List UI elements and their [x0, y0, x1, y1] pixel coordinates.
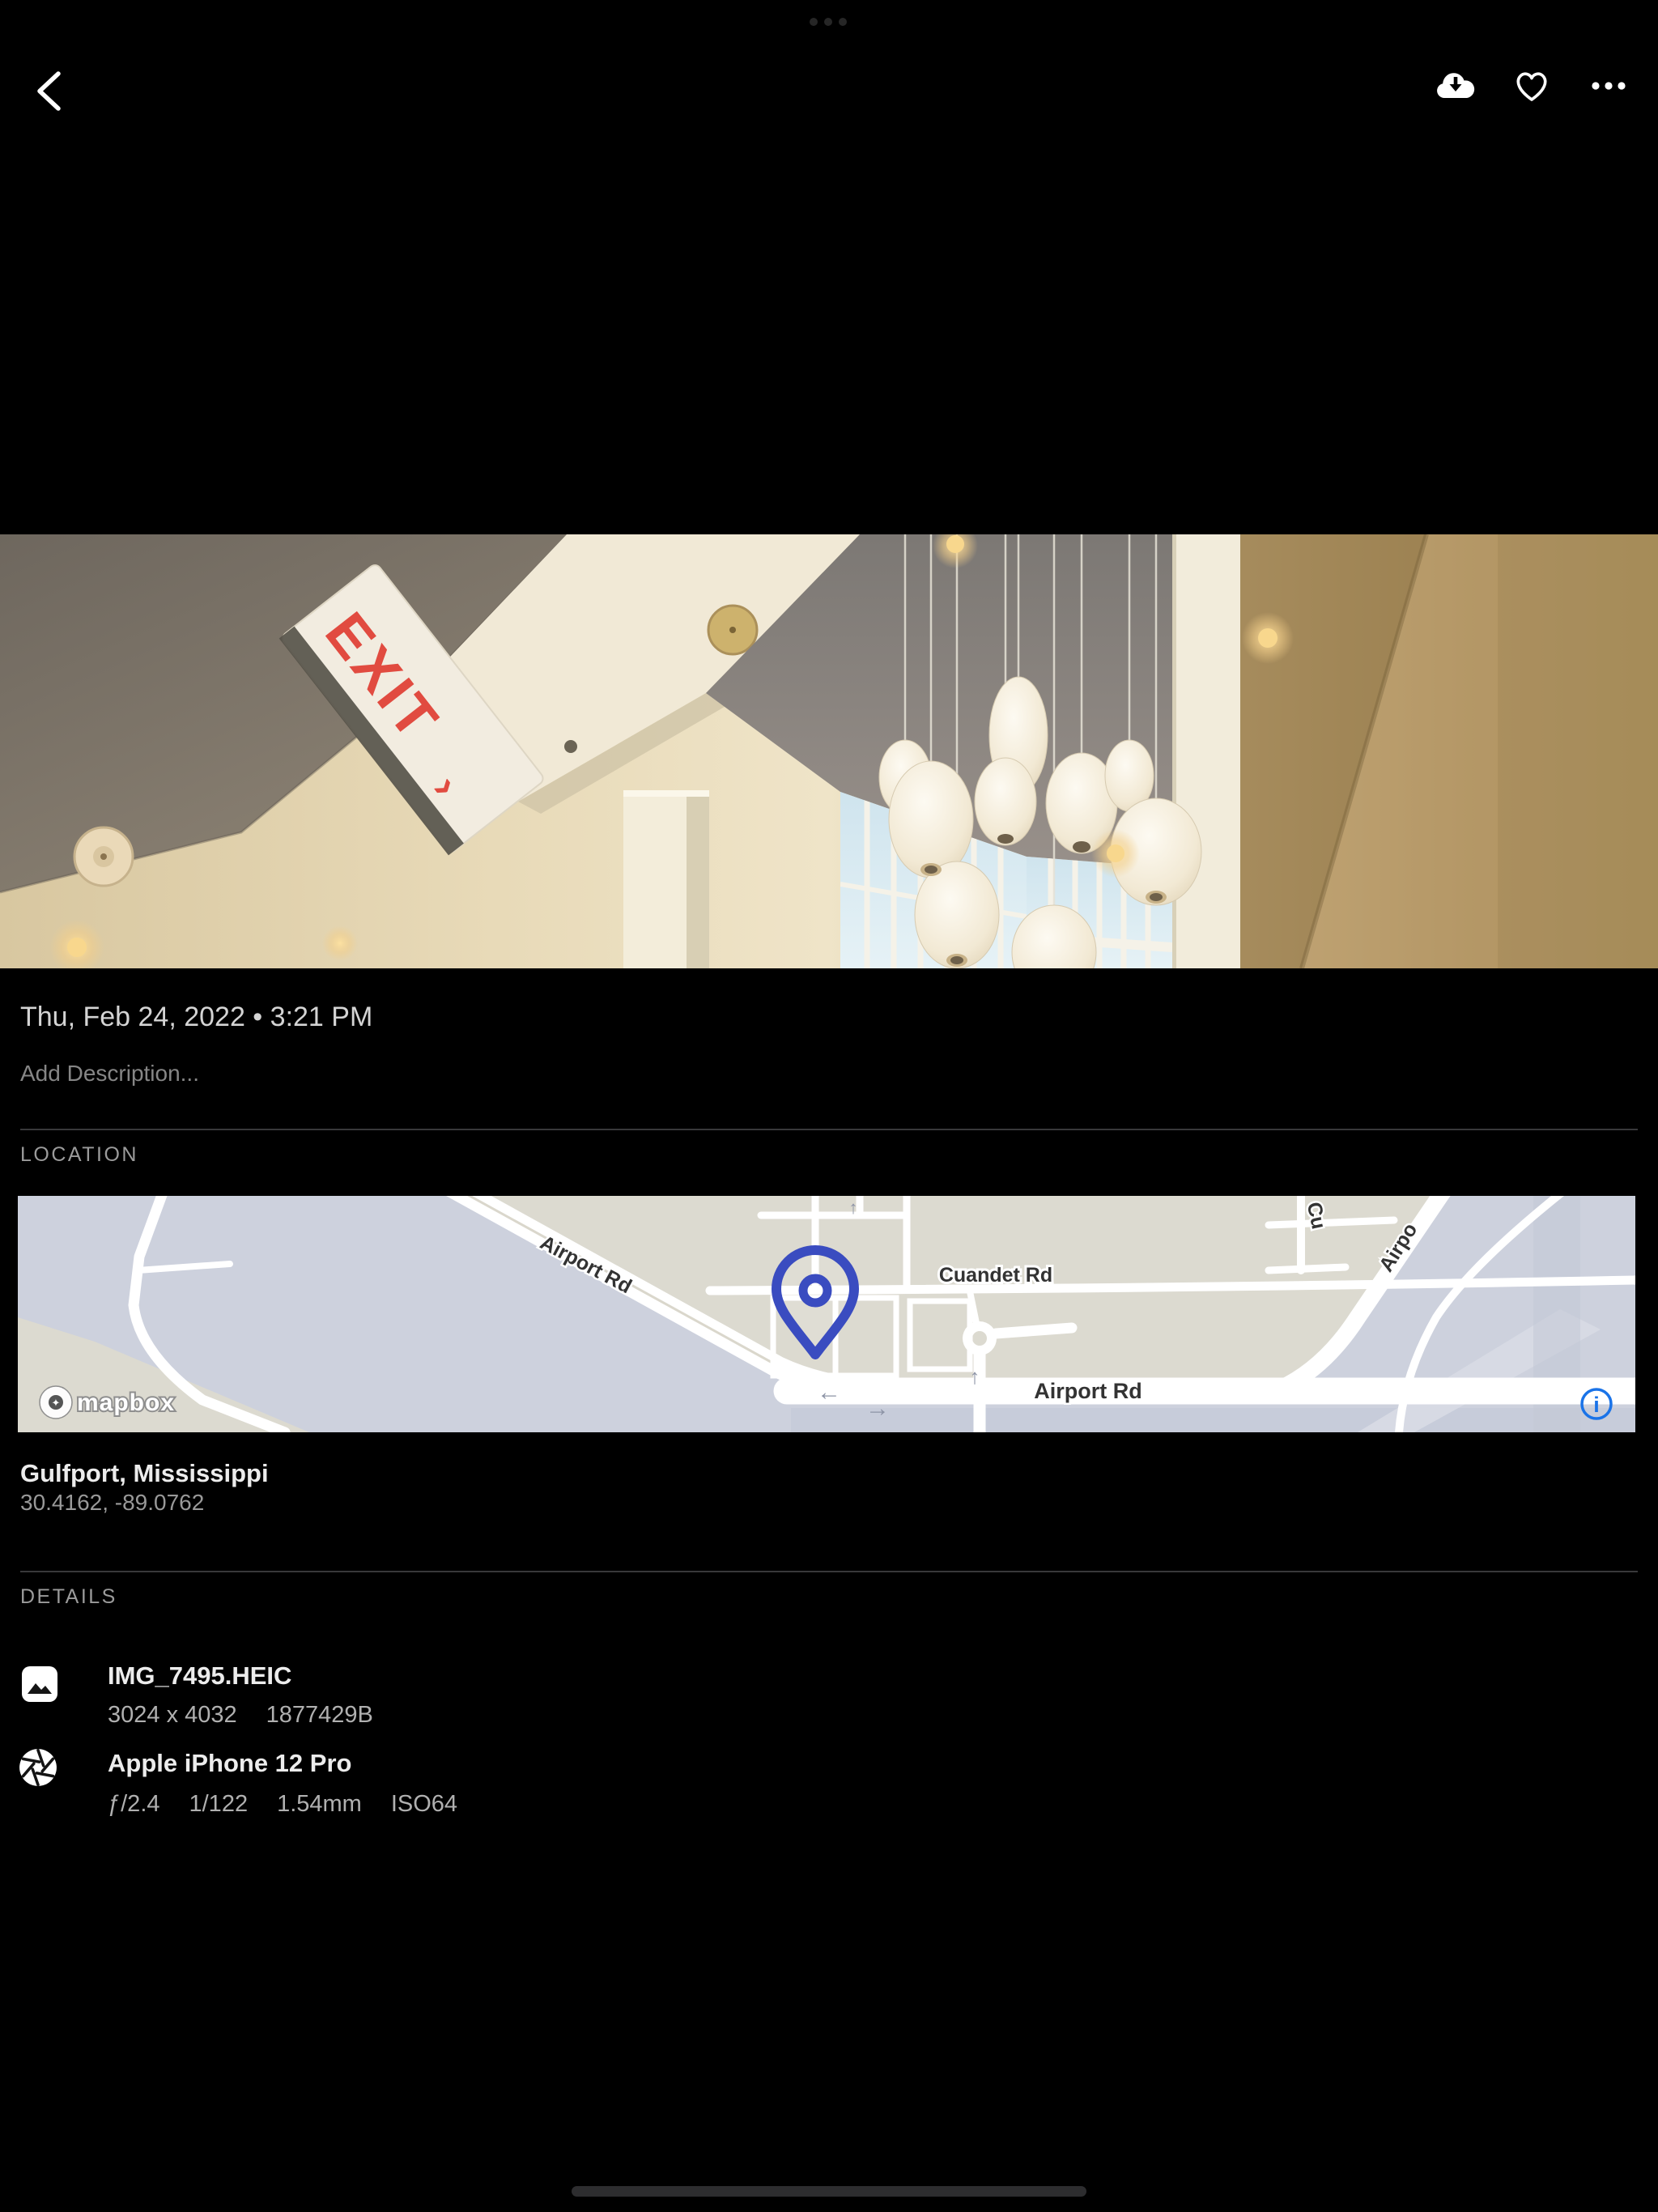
- file-size: 1877429B: [266, 1702, 373, 1728]
- ceiling-speaker: [564, 740, 577, 753]
- mapbox-logo-star: ✦: [52, 1397, 61, 1409]
- file-meta: 3024 x 40321877429B: [108, 1702, 402, 1729]
- info-icon-glyph: i: [1593, 1393, 1600, 1417]
- arrow-up: ↑: [970, 1364, 980, 1389]
- home-indicator[interactable]: [572, 2186, 1086, 2197]
- column: [623, 790, 709, 968]
- divider: [20, 1129, 1638, 1130]
- label-cuandet-rd: Cuandet Rd: [939, 1264, 1052, 1287]
- camera-focal: 1.54mm: [277, 1791, 362, 1817]
- location-map[interactable]: ← → ↑ ↑ Airport Rd Cuandet Rd Airport Rd…: [18, 1196, 1635, 1432]
- download-button[interactable]: [1434, 68, 1477, 102]
- divider: [20, 1571, 1638, 1572]
- camera-name: Apple iPhone 12 Pro: [108, 1749, 351, 1778]
- arrow-up-small: ↑: [849, 1197, 858, 1218]
- camera-iso: ISO64: [391, 1791, 457, 1817]
- photo[interactable]: EXIT ›: [0, 534, 1658, 968]
- right-soffits: [1240, 534, 1658, 968]
- arrow-right: →: [865, 1395, 890, 1422]
- description-placeholder[interactable]: Add Description...: [20, 1061, 199, 1087]
- smoke-detector: [74, 827, 133, 886]
- location-place: Gulfport, Mississippi: [20, 1459, 269, 1488]
- app-switcher-dots: [806, 15, 852, 29]
- label-airport-rd-horizontal: Airport Rd: [1034, 1379, 1141, 1403]
- mapbox-attribution[interactable]: ✦ mapbox: [40, 1386, 175, 1419]
- arrow-left: ←: [817, 1379, 841, 1406]
- camera-shutter: 1/122: [189, 1791, 249, 1817]
- camera-aperture: ƒ/2.4: [108, 1791, 160, 1817]
- cloud-download-icon: [1437, 73, 1474, 98]
- location-coordinates: 30.4162, -89.0762: [20, 1490, 204, 1516]
- ellipsis-icon: [1592, 82, 1625, 89]
- camera-meta: ƒ/2.41/1221.54mmISO64: [108, 1791, 487, 1818]
- favorite-button[interactable]: [1513, 69, 1550, 104]
- back-button[interactable]: [29, 68, 71, 115]
- file-name: IMG_7495.HEIC: [108, 1661, 291, 1691]
- image-icon: [20, 1665, 59, 1704]
- details-header: DETAILS: [20, 1585, 117, 1609]
- aperture-icon: [18, 1747, 58, 1788]
- location-header: LOCATION: [20, 1143, 138, 1167]
- more-button[interactable]: [1590, 78, 1627, 94]
- file-dimensions: 3024 x 4032: [108, 1702, 237, 1728]
- mapbox-wordmark: mapbox: [77, 1389, 175, 1416]
- capture-datetime[interactable]: Thu, Feb 24, 2022 • 3:21 PM: [20, 1002, 372, 1033]
- heart-icon: [1518, 74, 1545, 100]
- photo-detail-screen: EXIT › Thu, Feb 24, 2022 • 3:21 PM Add D…: [0, 0, 1658, 2212]
- chevron-left-icon: [40, 74, 58, 108]
- atrium-right-wall: [1172, 534, 1240, 968]
